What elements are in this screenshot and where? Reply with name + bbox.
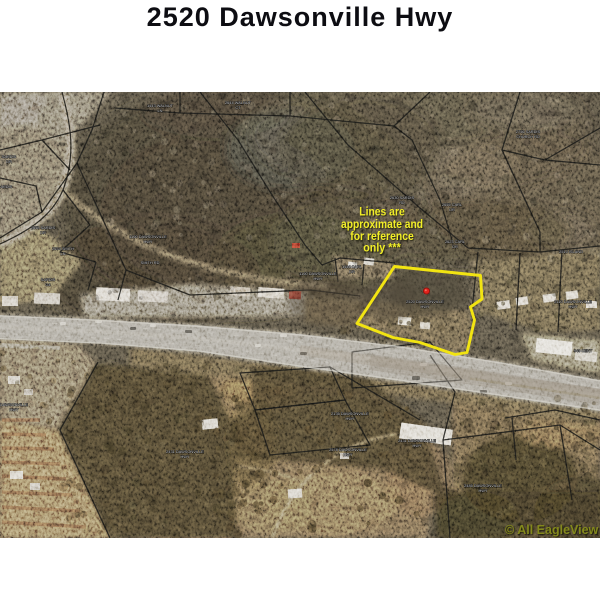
svg-text:HWY: HWY bbox=[412, 443, 421, 448]
svg-text:DR: DR bbox=[6, 159, 12, 164]
svg-text:HWY: HWY bbox=[313, 276, 322, 281]
svg-text:SMITH RD: SMITH RD bbox=[141, 260, 160, 265]
svg-text:CHURCH RD: CHURCH RD bbox=[516, 134, 540, 139]
svg-text:LN: LN bbox=[61, 251, 66, 256]
svg-text:HWY: HWY bbox=[568, 304, 577, 309]
svg-text:HWY: HWY bbox=[478, 488, 487, 493]
svg-text:HWY: HWY bbox=[180, 454, 189, 459]
svg-text:DR: DR bbox=[349, 269, 355, 274]
svg-text:2510 ISLAND: 2510 ISLAND bbox=[559, 249, 583, 254]
svg-text:HWY: HWY bbox=[420, 304, 429, 309]
svg-text:HWY: HWY bbox=[345, 416, 354, 421]
svg-text:LN: LN bbox=[158, 108, 163, 113]
svg-text:943 CENT: 943 CENT bbox=[574, 348, 593, 353]
svg-text:CT: CT bbox=[235, 105, 241, 110]
svg-text:SARDIS: SARDIS bbox=[0, 184, 13, 189]
svg-text:HWY: HWY bbox=[9, 407, 18, 412]
svg-text:DR: DR bbox=[452, 244, 458, 249]
svg-text:DR: DR bbox=[449, 207, 455, 212]
svg-text:HWY: HWY bbox=[143, 239, 152, 244]
svg-text:approximate and: approximate and bbox=[341, 218, 423, 231]
svg-text:HWY: HWY bbox=[343, 452, 352, 457]
svg-text:DR: DR bbox=[40, 230, 46, 235]
svg-text:Lines are: Lines are bbox=[359, 206, 405, 219]
svg-text:RD: RD bbox=[399, 200, 405, 205]
svg-text:© All EagleView Te: © All EagleView Te bbox=[505, 523, 600, 537]
svg-text:G4: G4 bbox=[45, 282, 51, 287]
svg-text:only ***: only *** bbox=[363, 242, 401, 255]
